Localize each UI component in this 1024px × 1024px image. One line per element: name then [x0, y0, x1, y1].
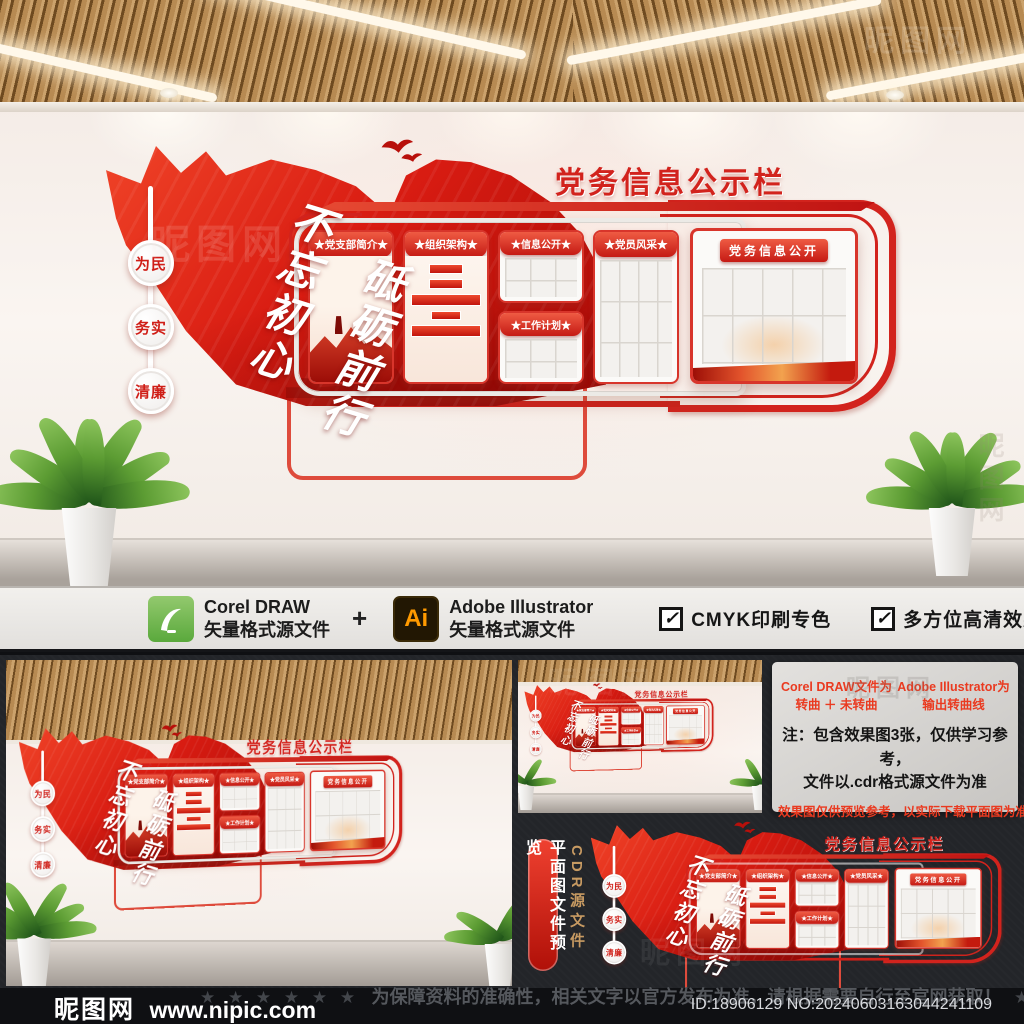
board-header: ★党员风采★	[265, 773, 303, 787]
value-circle: 为民	[602, 874, 626, 898]
doves-icon	[732, 818, 760, 838]
main-board-badge: 党务信息公开	[324, 775, 373, 788]
board-org-structure: ★组织架构★	[403, 230, 489, 384]
software-name: Adobe Illustrator	[449, 596, 593, 619]
value-circles: 为民 务实 清廉	[128, 240, 174, 414]
board-member-style: ★党员风采★	[593, 230, 679, 384]
org-chart-node	[605, 727, 612, 729]
card-grid	[505, 258, 577, 297]
culture-wall-design: 不忘初心 砥砺前行 为民 务实 清廉 党务信息公示栏 ★党支部简介★ ★组织架构…	[526, 684, 717, 765]
render-preview-small: 不忘初心 砥砺前行 为民 务实 清廉 党务信息公示栏 ★党支部简介★ ★组织架构…	[518, 660, 762, 813]
board-member-style: ★党员风采★	[844, 869, 889, 949]
org-chart-node	[185, 791, 202, 797]
flat-artwork-preview: 平面图文件预览 CDR源文件 不忘初心 砥砺前行 为民 务实 清廉 党务信息公示…	[518, 815, 1018, 988]
potted-plant	[748, 791, 762, 810]
board-header: ★组织架构★	[405, 232, 487, 257]
board-org-structure: ★组织架构★	[745, 869, 790, 949]
culture-wall-design: 不忘初心 砥砺前行 为民 务实 清廉 党务信息公示栏 ★党支部简介★ ★组织架构…	[112, 142, 912, 452]
stars-decoration: ★ ★ ★ ★ ★ ★	[1014, 988, 1024, 1007]
main-board-badge: 党务信息公开	[673, 708, 698, 714]
potted-plant	[893, 440, 1012, 576]
photo-grid	[268, 787, 302, 849]
wall-design-slot: 不忘初心 砥砺前行 为民 务实 清廉 党务信息公示栏 ★党支部简介★ ★组织架构…	[526, 684, 762, 813]
note-line: 注：包含效果图3张，仅供学习参考，	[778, 724, 1012, 771]
board-column: ★信息公开★ ★工作计划★	[498, 230, 584, 384]
downlight-icon	[160, 88, 178, 98]
board-column: ★信息公开★ ★工作计划★	[795, 869, 840, 949]
board-column: ★信息公开★ ★工作计划★	[621, 706, 641, 745]
note-line: 转曲 ＋ 未转曲	[778, 696, 895, 714]
value-circle: 为民	[128, 240, 174, 286]
coreldraw-icon	[148, 596, 194, 642]
main-render: 不忘初心 砥砺前行 为民 务实 清廉 党务信息公示栏 ★党支部简介★ ★组织架构…	[0, 0, 1024, 586]
card-grid	[798, 925, 835, 945]
checkbox-icon: ✓	[871, 607, 895, 631]
main-photo-grid	[315, 790, 380, 841]
value-circles: 为民 务实 清廉	[602, 874, 626, 964]
value-circles: 为民 务实 清廉	[530, 710, 542, 756]
value-circle-label: 清廉	[532, 746, 540, 752]
corel-note: Corel DRAW文件为 转曲 ＋ 未转曲	[778, 678, 895, 714]
photo-grid	[848, 884, 885, 945]
title-underline-swoosh	[700, 854, 991, 859]
org-chart-node	[185, 799, 202, 805]
render-preview-angled: 不忘初心 砥砺前行 为民 务实 清廉 党务信息公示栏 ★党支部简介★ ★组织架构…	[6, 660, 512, 986]
value-circle-label: 清廉	[135, 381, 167, 402]
downlight-icon	[886, 90, 904, 100]
board-header: ★信息公开★	[621, 707, 640, 713]
org-chart-bar	[411, 294, 481, 306]
doves-icon	[160, 721, 187, 742]
board-header: ★工作计划★	[220, 816, 259, 829]
stock-image-preview: 不忘初心 砥砺前行 为民 务实 清廉 党务信息公示栏 ★党支部简介★ ★组织架构…	[0, 0, 1024, 1024]
card-grid	[798, 883, 835, 903]
board-column: ★信息公开★ ★工作计划★	[219, 772, 260, 854]
wall-title: 党务信息公示栏	[247, 734, 354, 757]
value-circle-label: 务实	[532, 730, 540, 736]
note-line: 输出转曲线	[895, 696, 1012, 714]
board-info-disclosure: ★信息公开★	[795, 869, 840, 907]
org-chart	[599, 713, 619, 745]
org-chart-bar	[749, 902, 785, 908]
ceiling-fascia	[0, 102, 1024, 112]
value-circle: 务实	[530, 726, 542, 738]
board-header: ★工作计划★	[621, 727, 640, 733]
value-circle: 清廉	[128, 368, 174, 414]
landscape-ribbon	[693, 361, 855, 381]
value-circle: 清廉	[31, 851, 55, 878]
wall-title: 党务信息公示栏	[824, 831, 944, 854]
value-circle-label: 务实	[606, 914, 623, 925]
ceiling	[0, 0, 1024, 112]
brand-logo: 昵图网	[54, 996, 135, 1024]
org-chart-node	[759, 886, 777, 891]
value-circle: 务实	[31, 816, 55, 842]
main-photo-grid	[669, 715, 702, 739]
ceiling	[518, 660, 762, 686]
board-member-style: ★党员风采★	[643, 706, 663, 745]
org-chart-node	[759, 894, 777, 899]
value-circle: 务实	[602, 907, 626, 931]
board-header: ★组织架构★	[746, 870, 789, 883]
org-chart-bar	[176, 823, 210, 830]
board-work-plan: ★工作计划★	[795, 911, 840, 949]
main-photo-grid	[702, 268, 846, 364]
asset-id: ID:18906129 NO:20240603163044241109	[691, 996, 992, 1014]
org-chart-node	[604, 715, 612, 718]
check-glyph: ✓	[876, 608, 891, 629]
plant-pot	[926, 508, 979, 576]
value-circle-label: 清廉	[606, 947, 623, 958]
board-work-plan: ★工作计划★	[621, 727, 641, 746]
flat-preview-label: 平面图文件预览	[528, 839, 558, 971]
potted-plant	[518, 791, 538, 810]
org-chart-node	[186, 816, 201, 821]
org-chart-bar	[600, 723, 617, 726]
org-chart-node	[604, 719, 612, 722]
org-chart-bar	[600, 731, 617, 734]
board-member-style: ★党员风采★	[265, 772, 305, 853]
potted-plant	[470, 926, 513, 986]
plant-pot	[15, 938, 53, 986]
coreldraw-label: Corel DRAW 矢量格式源文件	[204, 596, 330, 641]
org-chart-bar	[749, 918, 785, 924]
board-org-structure: ★组织架构★	[173, 773, 215, 856]
site-footer: ★ ★ ★ ★ ★ ★ 为保障资料的准确性，相关文字以官方发布为准，请根据需要自…	[0, 988, 1024, 1024]
feature-cmyk: ✓ CMYK印刷专色	[659, 605, 831, 632]
plant-pot	[58, 508, 120, 586]
software-desc: 矢量格式源文件	[204, 619, 330, 642]
org-chart-bar	[176, 807, 210, 814]
board-info-disclosure: ★信息公开★	[621, 706, 641, 725]
wall-title: 党务信息公示栏	[634, 688, 688, 699]
plant-pot	[518, 786, 535, 810]
potted-plant	[6, 915, 68, 986]
main-photo-grid	[901, 889, 976, 939]
doves-icon	[592, 681, 605, 691]
software-format-bar: Corel DRAW 矢量格式源文件 + Ai Adobe Illustrato…	[0, 586, 1024, 652]
plus-sign: +	[352, 603, 367, 634]
plant-pot	[751, 786, 762, 810]
software-desc: 矢量格式源文件	[449, 619, 593, 642]
board-work-plan: ★工作计划★	[219, 815, 260, 855]
board-party-info-public: 党务信息公开	[895, 868, 982, 949]
cdr-source-label: CDR源文件	[566, 845, 587, 953]
board-org-structure: ★组织架构★	[598, 706, 619, 746]
feature-renders: ✓ 多方位高清效果图	[871, 605, 1024, 632]
board-header: ★信息公开★	[796, 870, 839, 882]
board-info-disclosure: ★信息公开★	[498, 230, 584, 303]
value-circle: 务实	[128, 304, 174, 350]
board-header: ★党员风采★	[644, 707, 663, 713]
value-circle: 清廉	[530, 743, 542, 755]
board-party-info-public: 党务信息公开	[666, 705, 705, 744]
value-circle: 清廉	[602, 941, 626, 965]
org-chart-node	[431, 311, 461, 320]
wall-design-slot: 不忘初心 砥砺前行 为民 务实 清廉 党务信息公示栏 ★党支部简介★ ★组织架构…	[112, 142, 912, 452]
board-info-disclosure: ★信息公开★	[219, 772, 260, 811]
site-brand: 昵图网 www.nipic.com	[54, 990, 316, 1024]
card-grid	[623, 713, 640, 723]
org-chart-node	[429, 279, 463, 289]
culture-wall-design: 不忘初心 砥砺前行 为民 务实 清廉 党务信息公示栏 ★党支部简介★ ★组织架构…	[22, 726, 409, 900]
doves-icon	[378, 132, 432, 170]
title-underline-swoosh	[315, 202, 875, 211]
value-circle-label: 务实	[135, 317, 167, 338]
value-circle-label: 为民	[532, 713, 540, 719]
org-chart-bar	[411, 325, 481, 337]
org-chart-node	[760, 911, 776, 916]
board-header: ★工作计划★	[500, 313, 582, 336]
value-circle-label: 为民	[606, 880, 623, 891]
board-header: ★工作计划★	[796, 912, 839, 924]
value-circle-label: 为民	[34, 787, 51, 799]
main-board-badge: 党务信息公开	[910, 873, 966, 885]
value-circle-label: 务实	[34, 823, 51, 835]
illustrator-label: Adobe Illustrator 矢量格式源文件	[449, 596, 593, 641]
note-line: Adobe Illustrator为	[895, 678, 1012, 696]
board-header: ★信息公开★	[500, 232, 582, 255]
card-grid	[222, 830, 256, 852]
content-note: 注：包含效果图3张，仅供学习参考， 文件以.cdr格式源文件为准	[778, 724, 1012, 794]
wall-title: 党务信息公示栏	[555, 158, 786, 202]
illustrator-icon: Ai	[393, 596, 439, 642]
software-name: Corel DRAW	[204, 596, 330, 619]
board-header: ★信息公开★	[220, 773, 259, 786]
plant-pot	[483, 944, 512, 986]
note-line: Corel DRAW文件为	[778, 678, 895, 696]
ai-glyph: Ai	[404, 605, 428, 633]
value-circles: 为民 务实 清廉	[31, 780, 55, 878]
card-grid	[623, 734, 640, 744]
feature-label: CMYK印刷专色	[691, 605, 831, 632]
check-glyph: ✓	[664, 608, 679, 629]
brand-url: www.nipic.com	[149, 997, 316, 1023]
wall-design-slot: 不忘初心 砥砺前行 为民 务实 清廉 党务信息公示栏 ★党支部简介★ ★组织架构…	[22, 726, 512, 986]
board-header: ★党员风采★	[845, 870, 888, 883]
photo-grid	[600, 260, 672, 377]
card-grid	[222, 787, 256, 808]
value-circle: 为民	[31, 780, 55, 806]
preview-zone: 不忘初心 砥砺前行 为民 务实 清廉 党务信息公示栏 ★党支部简介★ ★组织架构…	[0, 655, 1024, 988]
value-circle: 为民	[530, 710, 542, 722]
file-format-notes: Corel DRAW文件为 转曲 ＋ 未转曲 Adobe Illustrator…	[778, 678, 1012, 714]
value-circle-label: 清廉	[34, 859, 51, 871]
org-chart-node	[429, 264, 463, 274]
value-circle-label: 为民	[135, 253, 167, 274]
board-party-info-public: 党务信息公开	[310, 770, 386, 852]
feature-label: 多方位高清效果图	[903, 605, 1024, 632]
board-header: ★党员风采★	[595, 232, 677, 257]
illustrator-note: Adobe Illustrator为 输出转曲线	[895, 678, 1012, 714]
org-chart	[173, 787, 213, 855]
board-work-plan: ★工作计划★	[498, 311, 584, 384]
culture-wall-design: 不忘初心 砥砺前行 为民 务实 清廉 党务信息公示栏 ★党支部简介★ ★组织架构…	[594, 823, 1010, 984]
org-chart	[746, 882, 789, 948]
checkbox-icon: ✓	[659, 607, 683, 631]
org-chart	[405, 256, 487, 382]
photo-grid	[645, 714, 662, 744]
board-party-info-public: 党务信息公开	[690, 228, 858, 384]
file-info-panel: Corel DRAW文件为 转曲 ＋ 未转曲 Adobe Illustrator…	[772, 662, 1018, 812]
main-board-badge: 党务信息公开	[720, 239, 828, 262]
note-line: 文件以.cdr格式源文件为准	[778, 771, 1012, 794]
card-grid	[505, 339, 577, 378]
